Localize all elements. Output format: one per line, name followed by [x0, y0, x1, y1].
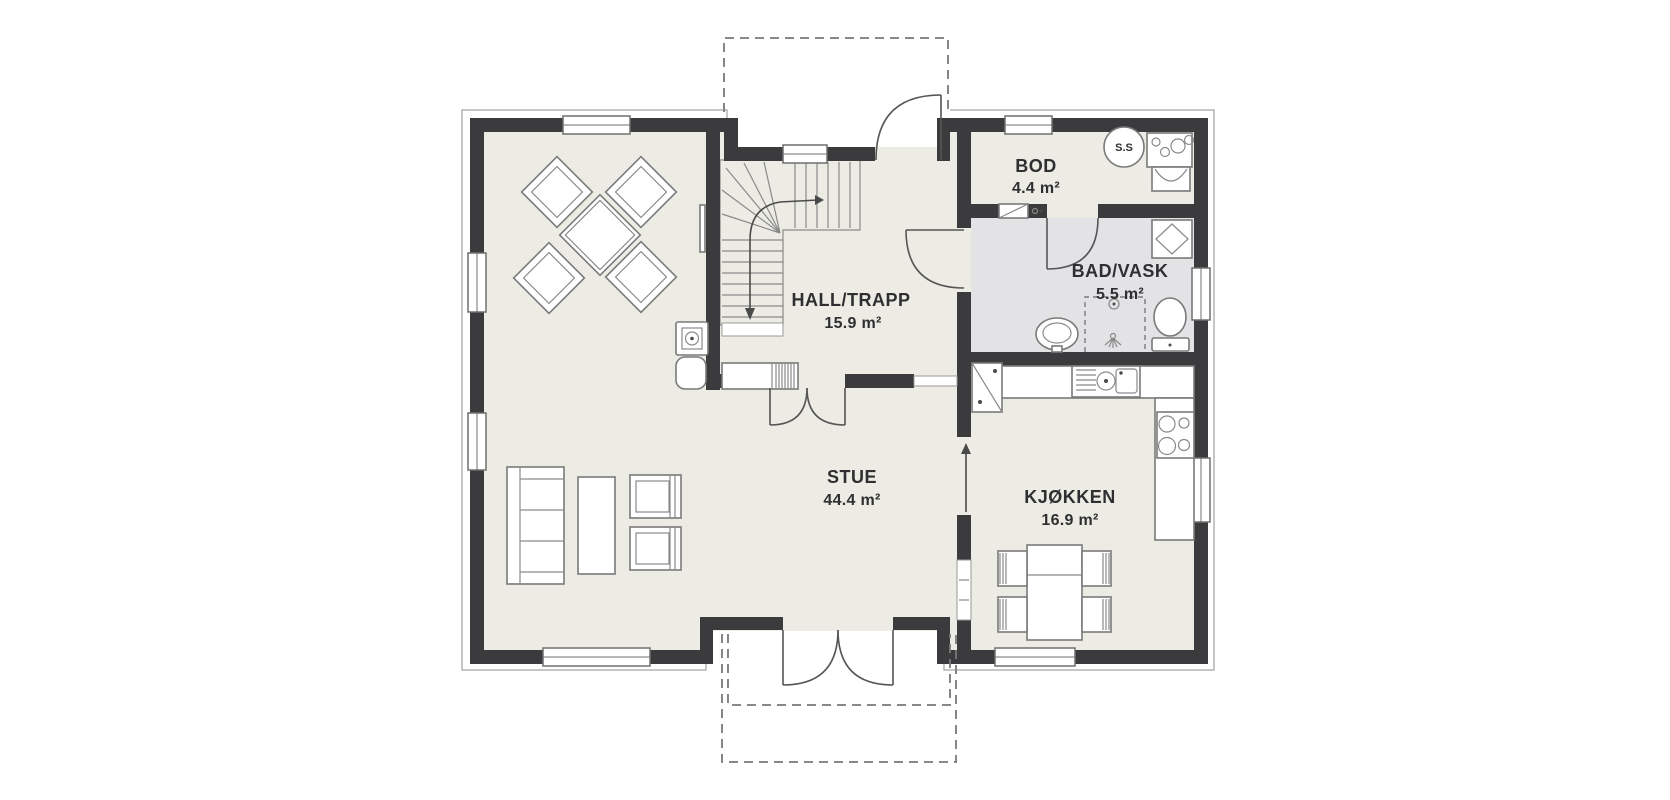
coffee-table: [578, 477, 615, 574]
dishwasher: [972, 363, 1002, 412]
room-area-hall: 15.9 m²: [824, 315, 881, 332]
room-area-stue: 44.4 m²: [823, 492, 880, 509]
kitchen-chair: [1082, 597, 1111, 632]
sofa: [507, 467, 564, 584]
room-area-kjokken: 16.9 m²: [1041, 512, 1098, 529]
wood-basket: [676, 357, 706, 389]
laundry-counter: [1147, 133, 1194, 167]
wardrobe-bench: [722, 363, 798, 389]
window: [468, 253, 486, 312]
room-label-kjokken: KJØKKEN: [1024, 487, 1116, 507]
laundry-sink: [1152, 167, 1190, 191]
tv: [700, 205, 705, 252]
kitchen-sink: [1072, 366, 1140, 397]
room-area-bod: 4.4 m²: [1012, 180, 1060, 197]
floor-plan-page: S.S: [0, 0, 1670, 800]
room-label-hall: HALL/TRAPP: [792, 290, 911, 310]
kitchen-chair: [1082, 551, 1111, 586]
stove: [1157, 412, 1194, 458]
window: [995, 648, 1075, 666]
armchair: [630, 527, 681, 570]
room-area-bad: 5.5 m²: [1096, 286, 1144, 303]
window: [1005, 116, 1052, 134]
room-label-bad: BAD/VASK: [1072, 261, 1169, 281]
window: [563, 116, 630, 134]
window: [783, 145, 827, 163]
window: [468, 413, 486, 470]
window: [543, 648, 650, 666]
washing-machine: [1152, 220, 1192, 258]
toilet: [1152, 298, 1189, 351]
floor-plan-drawing: S.S: [0, 0, 1670, 800]
kitchen-table: [1027, 545, 1082, 640]
window: [1192, 268, 1210, 320]
kitchen-chair: [998, 597, 1027, 632]
room-label-bod: BOD: [1015, 156, 1057, 176]
room-label-stue: STUE: [827, 467, 877, 487]
kitchen-passage-opening: [914, 376, 957, 386]
water-heater: S.S: [1104, 127, 1144, 167]
stair-base: [722, 323, 783, 336]
water-heater-label: S.S: [1115, 142, 1133, 154]
stue-kitchen-opening: [957, 560, 971, 620]
kitchen-chair: [998, 551, 1027, 586]
fireplace: [676, 322, 708, 355]
armchair: [630, 475, 681, 518]
